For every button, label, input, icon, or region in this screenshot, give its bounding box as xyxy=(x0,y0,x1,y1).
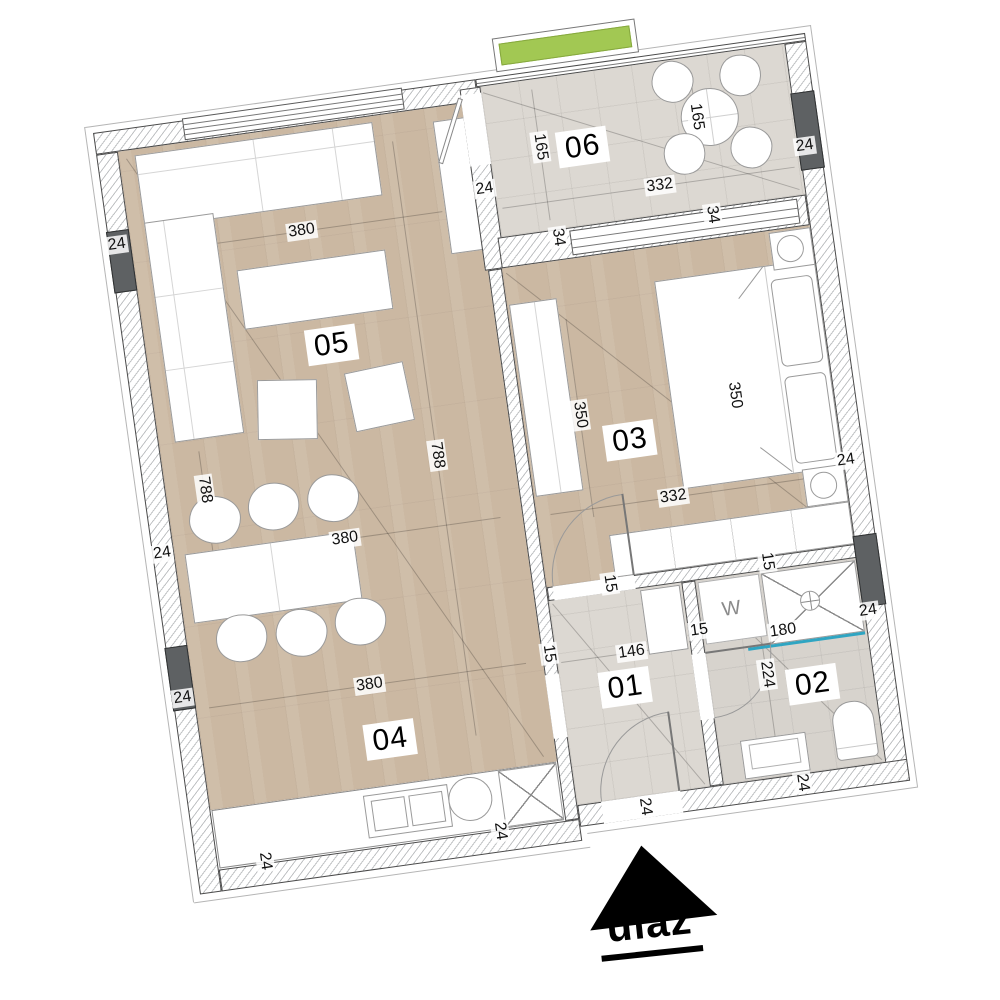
room-number-label: 01 xyxy=(597,666,653,709)
dimension-label: 24 xyxy=(150,543,174,564)
floor-plan: 3802424165165332243434350350788788243323… xyxy=(93,33,912,895)
stove-burner-plate xyxy=(408,791,446,826)
dimension-label: 24 xyxy=(490,819,511,843)
ottoman xyxy=(344,361,415,432)
balcony-chair xyxy=(730,127,772,169)
dimension-label: 24 xyxy=(170,688,194,709)
dimension-label: 15 xyxy=(599,571,620,595)
dimension-label: 15 xyxy=(757,549,778,573)
stove-burner-plate xyxy=(371,796,409,831)
room-number-label: 03 xyxy=(602,419,658,462)
room-number-label: 04 xyxy=(362,718,418,761)
dimension-label: 24 xyxy=(473,179,497,200)
kitchen-tall-cabinet xyxy=(498,763,564,828)
room-number-label: 06 xyxy=(555,126,611,169)
dimension-label: 34 xyxy=(548,225,569,249)
dimension-label: 24 xyxy=(856,600,880,621)
floor-plan-stage: 3802424165165332243434350350788788243323… xyxy=(0,0,1000,1000)
room-number-label: 05 xyxy=(304,323,360,366)
washing-machine-label: W xyxy=(721,598,742,620)
dimension-label: 15 xyxy=(687,620,711,641)
dimension-label: 15 xyxy=(538,642,559,666)
dimension-label: 24 xyxy=(834,450,858,471)
entrance-label: ulaz xyxy=(596,894,703,961)
dimension-label: 24 xyxy=(793,136,817,157)
room-number-label: 02 xyxy=(785,663,841,706)
dimension-label: 24 xyxy=(255,849,276,873)
dimension-label: 24 xyxy=(635,795,656,819)
dimension-label: 34 xyxy=(702,203,723,227)
dimension-label: 24 xyxy=(105,234,129,255)
ottoman xyxy=(257,379,318,440)
dimension-label: 24 xyxy=(792,771,813,795)
